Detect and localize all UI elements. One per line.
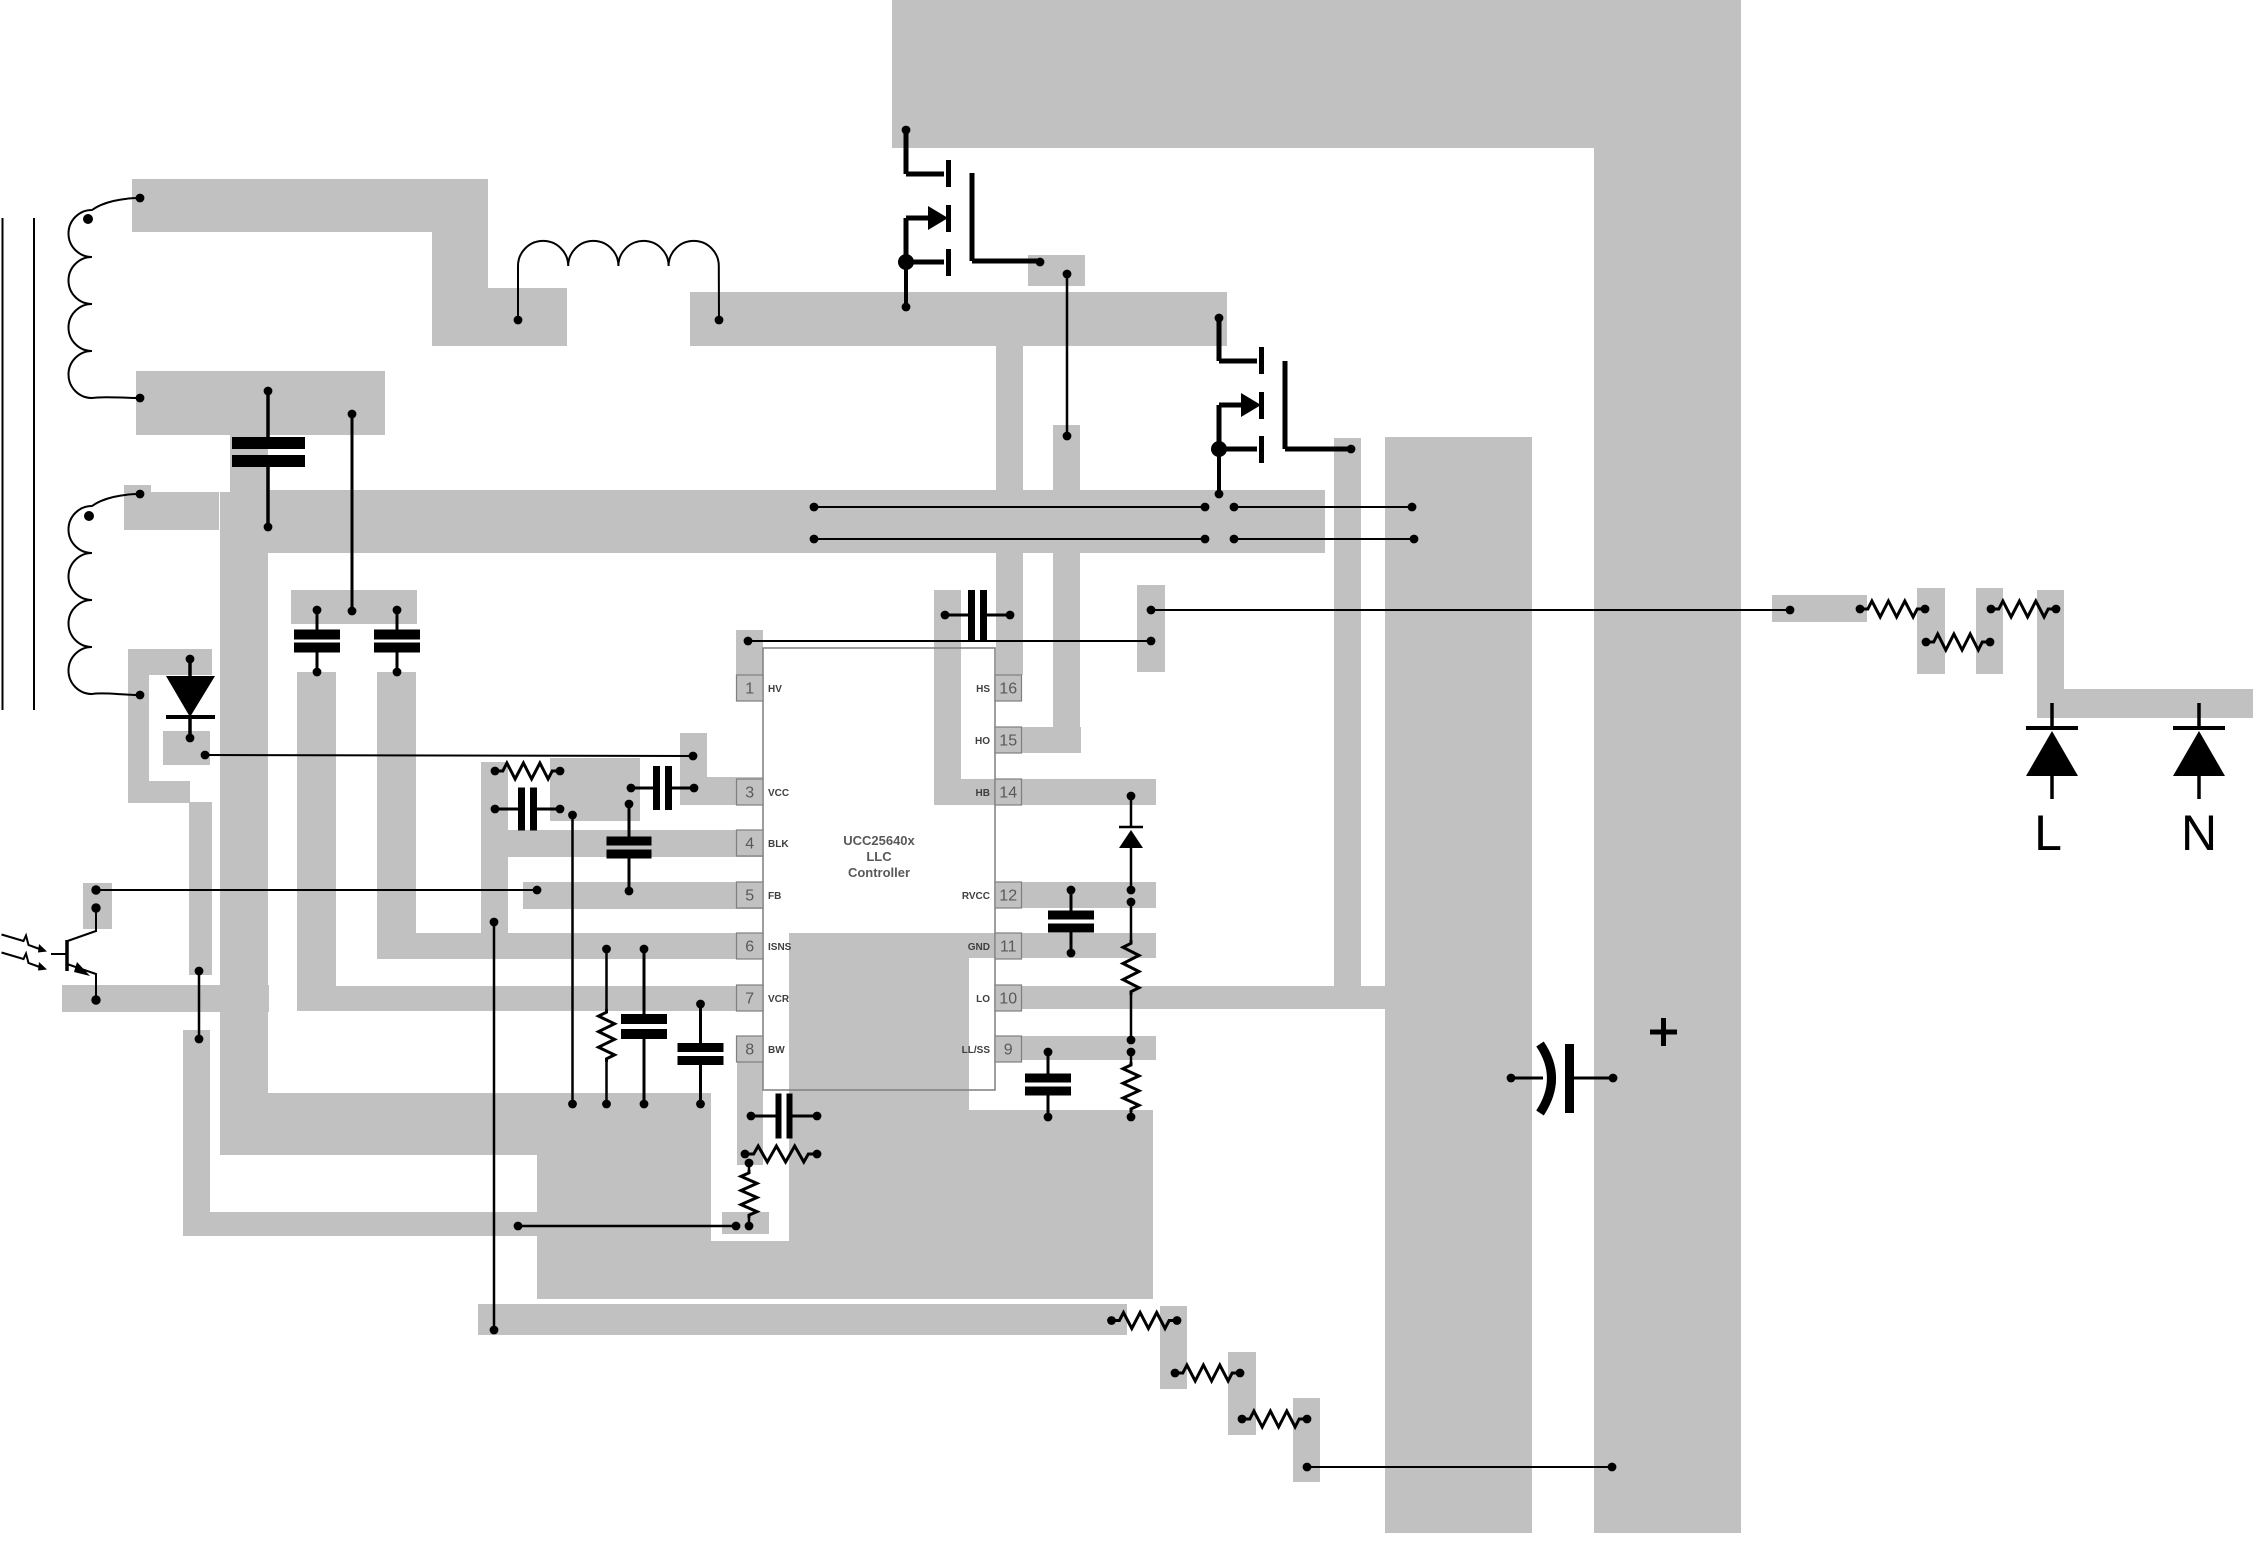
svg-text:UCC25640x: UCC25640x [843, 833, 915, 848]
svg-text:16: 16 [999, 681, 1017, 698]
svg-text:14: 14 [999, 785, 1017, 802]
svg-text:L: L [2034, 805, 2062, 861]
svg-text:5: 5 [745, 888, 754, 905]
svg-text:FB: FB [768, 891, 781, 902]
svg-text:RVCC: RVCC [962, 891, 990, 902]
svg-text:3: 3 [745, 785, 754, 802]
svg-text:HO: HO [975, 736, 990, 747]
svg-text:15: 15 [999, 733, 1017, 750]
svg-text:BW: BW [768, 1045, 785, 1056]
svg-text:VCR: VCR [768, 994, 790, 1005]
svg-text:11: 11 [1000, 939, 1017, 956]
svg-text:LL/SS: LL/SS [962, 1045, 991, 1056]
svg-text:HV: HV [768, 684, 782, 695]
svg-text:LO: LO [976, 994, 990, 1005]
svg-text:6: 6 [745, 939, 754, 956]
svg-text:4: 4 [745, 836, 754, 853]
svg-text:N: N [2181, 805, 2217, 861]
svg-text:8: 8 [745, 1042, 754, 1059]
svg-text:10: 10 [999, 991, 1017, 1008]
svg-text:Controller: Controller [848, 865, 910, 880]
svg-text:9: 9 [1004, 1042, 1013, 1059]
svg-text:HB: HB [976, 788, 990, 799]
svg-text:BLK: BLK [768, 839, 789, 850]
svg-text:12: 12 [999, 888, 1017, 905]
svg-text:VCC: VCC [768, 788, 789, 799]
svg-text:LLC: LLC [866, 849, 892, 864]
svg-text:GND: GND [968, 942, 990, 953]
svg-text:7: 7 [745, 991, 754, 1008]
svg-text:1: 1 [745, 681, 754, 698]
svg-text:ISNS: ISNS [768, 942, 792, 953]
svg-text:HS: HS [976, 684, 990, 695]
